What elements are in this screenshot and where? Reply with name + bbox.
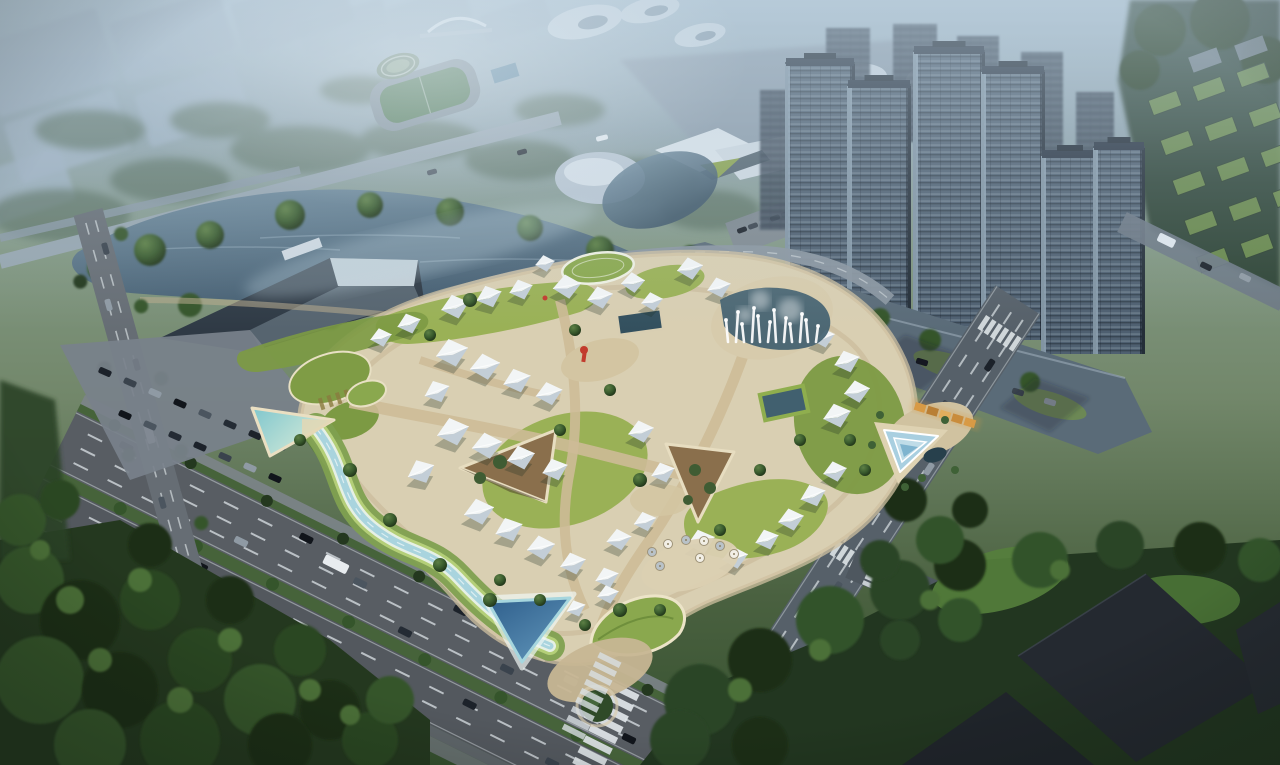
aerial-render-scene — [0, 0, 1280, 765]
vignette — [0, 0, 1280, 765]
aerial-render-canvas — [0, 0, 1280, 765]
atmosphere-overlay — [0, 0, 1280, 765]
